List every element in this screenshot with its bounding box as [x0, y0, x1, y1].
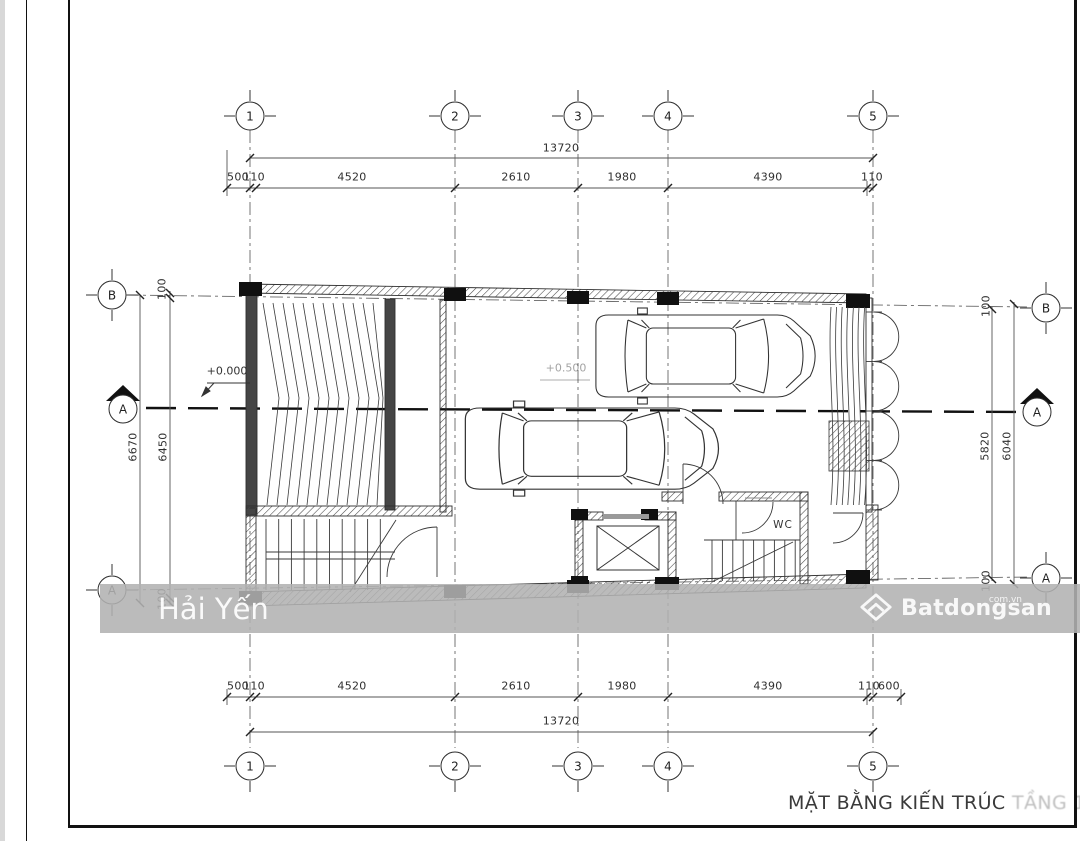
dim-top-seg: 1980 [607, 171, 636, 184]
watermark-bar: Hải Yến Batdongsan com.vn [100, 584, 1080, 633]
section-marker-left: A [109, 395, 138, 424]
dim-bottom-seg: 4520 [337, 680, 366, 693]
dim-top-total: 13720 [543, 142, 580, 155]
dim-top-seg: 2610 [501, 171, 530, 184]
sheet-border-left [68, 0, 70, 828]
sheet-border-bottom [68, 825, 1077, 828]
dim-top-seg: 110 [861, 171, 883, 184]
floor-plan-drawing [0, 0, 1080, 841]
batdongsan-logo-icon [859, 592, 893, 626]
hai-yen-watermark: Hải Yến [158, 592, 269, 626]
dim-bottom-seg: 110 [243, 680, 265, 693]
grid-bubble-col4-bottom: 4 [654, 752, 683, 781]
dim-bottom-seg: 600 [878, 680, 900, 693]
grid-bubble-col4-top: 4 [654, 102, 683, 131]
grid-bubble-col3-top: 3 [564, 102, 593, 131]
dim-bottom-seg: 1980 [607, 680, 636, 693]
dim-right-outer: 6040 [1001, 431, 1014, 460]
batdongsan-brand-text: Batdongsan [901, 596, 1052, 621]
dim-left-inner: 6450 [157, 432, 170, 461]
dim-top-seg: 4520 [337, 171, 366, 184]
level-marker-zero: +0.000 [207, 365, 248, 378]
dimension-ticks [136, 154, 1018, 736]
sheet-margin-strip [0, 0, 5, 841]
wc-label: WC [773, 519, 793, 531]
batdongsan-watermark: Batdongsan com.vn [859, 592, 1052, 626]
dim-left-cap: 100 [156, 278, 169, 300]
grid-bubble-rowB-left: B [98, 281, 127, 310]
level-marker-arrows [202, 380, 590, 396]
dim-left-outer: 6670 [127, 432, 140, 461]
dim-bottom-seg: 4390 [753, 680, 782, 693]
car-bottom [465, 401, 718, 496]
grid-bubble-col2-bottom: 2 [441, 752, 470, 781]
stair-core [704, 540, 800, 581]
level-marker-mid: +0.500 [546, 362, 587, 375]
section-marker-right: A [1023, 398, 1052, 427]
grid-lines [126, 130, 1028, 748]
dim-right-inner: 5820 [979, 431, 992, 460]
dim-right-cap: 100 [980, 295, 993, 317]
elevator [597, 514, 659, 570]
grid-bubble-col5-bottom: 5 [859, 752, 888, 781]
ramp-right-hatch [829, 421, 869, 471]
dim-top-seg: 110 [243, 171, 265, 184]
sheet-border-right [1074, 0, 1077, 828]
grid-bubble-col2-top: 2 [441, 102, 470, 131]
dimension-lines [140, 150, 1014, 732]
grid-bubble-rowB-right: B [1032, 294, 1061, 323]
stair-left [266, 519, 396, 592]
dim-bottom-seg: 2610 [501, 680, 530, 693]
car-top [596, 308, 815, 404]
drawing-title-faded: TẦNG 1 [1006, 792, 1080, 814]
drawing-title: MẶT BẰNG KIẾN TRÚC TẦNG 1 [788, 792, 1080, 814]
batdongsan-brand-sup: com.vn [989, 595, 1022, 605]
ramp-left [263, 303, 383, 505]
sheet-border-left-thin [26, 0, 27, 841]
walls [246, 284, 878, 606]
dim-bottom-seg: 110 [858, 680, 880, 693]
grid-bubble-col3-bottom: 3 [564, 752, 593, 781]
ramp-right [830, 307, 867, 505]
drawing-sheet: 13720 500 110 4520 2610 1980 4390 110 50… [0, 0, 1080, 841]
dim-top-seg: 4390 [753, 171, 782, 184]
dim-bottom-total: 13720 [543, 715, 580, 728]
drawing-title-main: MẶT BẰNG KIẾN TRÚC [788, 792, 1006, 814]
grid-bubble-col1-top: 1 [236, 102, 265, 131]
grid-bubble-col5-top: 5 [859, 102, 888, 131]
grid-bubble-col1-bottom: 1 [236, 752, 265, 781]
